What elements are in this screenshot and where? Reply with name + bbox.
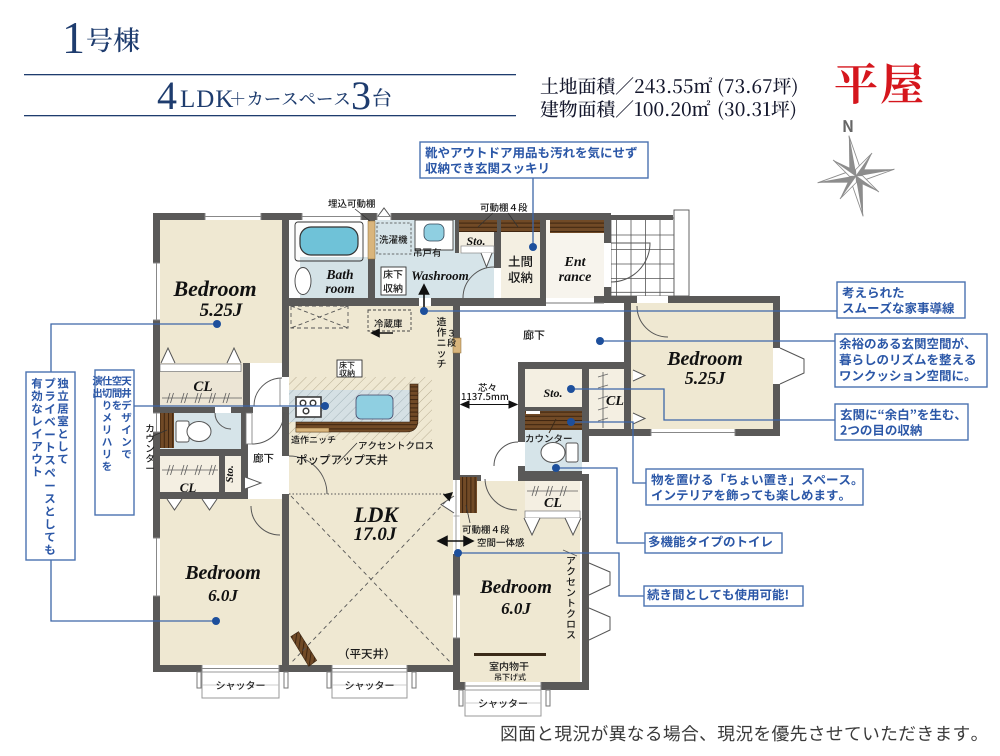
- svg-text:CL: CL: [544, 496, 562, 511]
- svg-text:Bedroom: Bedroom: [184, 562, 261, 584]
- svg-text:CL: CL: [193, 379, 212, 395]
- svg-text:6.0J: 6.0J: [208, 586, 238, 605]
- svg-text:3: 3: [351, 73, 371, 118]
- svg-text:Bedroom: Bedroom: [479, 577, 552, 598]
- svg-text:6.0J: 6.0J: [501, 599, 531, 618]
- svg-text:CL: CL: [180, 480, 197, 495]
- svg-text:5.25J: 5.25J: [200, 300, 243, 321]
- svg-text:Bedroom: Bedroom: [666, 348, 743, 370]
- svg-text:Sto.: Sto.: [543, 386, 562, 400]
- svg-text:room: room: [325, 281, 354, 296]
- svg-text:Ent: Ent: [563, 255, 586, 270]
- svg-text:1: 1: [62, 12, 85, 63]
- svg-text:LDK: LDK: [180, 86, 234, 113]
- svg-text:Bedroom: Bedroom: [172, 276, 256, 301]
- svg-text:Washroom: Washroom: [411, 268, 469, 283]
- svg-text:5.25J: 5.25J: [685, 368, 727, 388]
- svg-text:Sto.: Sto.: [466, 234, 485, 248]
- svg-text:Bath: Bath: [325, 267, 353, 282]
- svg-text:17.0J: 17.0J: [354, 524, 397, 545]
- svg-text:CL: CL: [606, 394, 624, 409]
- svg-text:4: 4: [157, 73, 177, 118]
- svg-text:rance: rance: [559, 270, 592, 285]
- svg-text:Sto.: Sto.: [224, 465, 236, 482]
